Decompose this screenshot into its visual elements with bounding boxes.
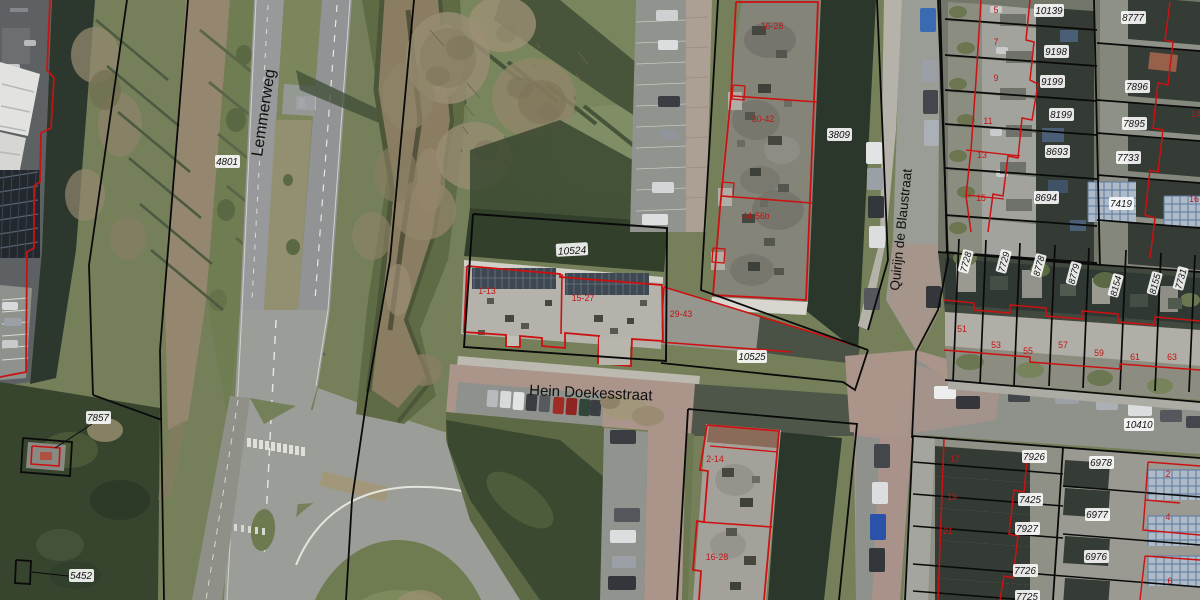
svg-text:6978: 6978: [1090, 458, 1112, 469]
svg-text:9198: 9198: [1045, 47, 1067, 58]
svg-text:5452: 5452: [70, 571, 92, 582]
svg-text:11: 11: [983, 116, 992, 126]
svg-text:44-56b: 44-56b: [742, 211, 769, 221]
svg-text:6977: 6977: [1086, 510, 1108, 521]
svg-text:59: 59: [1094, 348, 1104, 358]
svg-text:16-28: 16-28: [706, 552, 729, 562]
svg-text:51: 51: [957, 324, 967, 334]
svg-text:10524: 10524: [558, 245, 587, 257]
svg-text:6: 6: [1168, 576, 1173, 586]
svg-text:4: 4: [1166, 512, 1171, 522]
svg-text:9199: 9199: [1041, 77, 1063, 88]
svg-text:7733: 7733: [1117, 153, 1139, 164]
svg-text:7926: 7926: [1023, 452, 1045, 463]
svg-text:63: 63: [1167, 352, 1177, 362]
svg-text:7425: 7425: [1019, 495, 1041, 506]
svg-text:16-28: 16-28: [761, 21, 784, 31]
svg-text:13: 13: [977, 150, 987, 160]
svg-text:9: 9: [994, 73, 999, 83]
svg-text:8199: 8199: [1050, 110, 1072, 121]
svg-text:15: 15: [976, 193, 986, 203]
svg-text:29-43: 29-43: [670, 309, 693, 319]
svg-text:16: 16: [1189, 194, 1199, 204]
svg-text:19: 19: [947, 492, 957, 502]
svg-text:3809: 3809: [828, 130, 850, 141]
svg-text:53: 53: [991, 340, 1001, 350]
svg-text:7: 7: [994, 37, 999, 47]
svg-text:7927: 7927: [1016, 524, 1038, 535]
svg-text:15-27: 15-27: [572, 293, 595, 303]
svg-text:55: 55: [1023, 346, 1033, 356]
svg-text:2: 2: [1166, 469, 1171, 479]
svg-text:7725: 7725: [1016, 592, 1038, 600]
svg-text:5: 5: [994, 5, 999, 15]
svg-text:57: 57: [1058, 340, 1068, 350]
svg-text:2-14: 2-14: [706, 454, 724, 464]
svg-text:10410: 10410: [1125, 420, 1153, 431]
svg-text:7896: 7896: [1126, 82, 1148, 93]
svg-text:8777: 8777: [1122, 13, 1144, 24]
svg-text:7895: 7895: [1123, 119, 1145, 130]
svg-text:10525: 10525: [738, 352, 766, 363]
svg-text:8693: 8693: [1046, 147, 1068, 158]
svg-text:14: 14: [1191, 109, 1200, 119]
svg-text:6976: 6976: [1085, 552, 1107, 563]
svg-text:17: 17: [950, 454, 960, 464]
svg-text:30-42: 30-42: [752, 114, 775, 124]
svg-text:21: 21: [943, 526, 953, 536]
svg-text:7419: 7419: [1110, 199, 1132, 210]
svg-text:7857: 7857: [87, 413, 109, 424]
svg-text:8694: 8694: [1035, 193, 1057, 204]
svg-text:61: 61: [1130, 352, 1140, 362]
svg-text:1-13: 1-13: [478, 286, 496, 296]
svg-text:4801: 4801: [216, 157, 238, 168]
svg-text:7726: 7726: [1014, 566, 1036, 577]
svg-text:10139: 10139: [1035, 6, 1063, 17]
